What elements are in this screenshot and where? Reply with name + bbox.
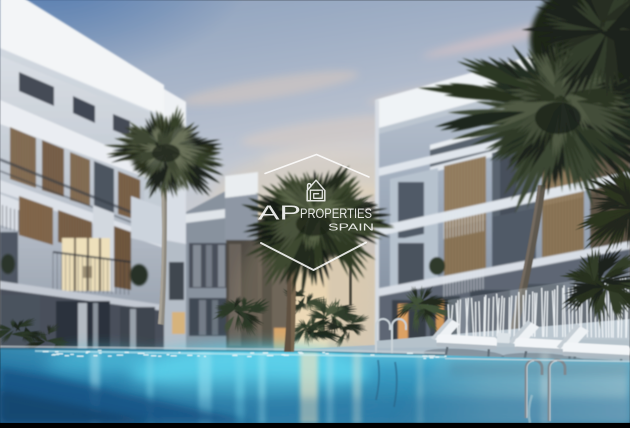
svg-text:PROPERTIES: PROPERTIES <box>300 206 372 222</box>
svg-text:AP: AP <box>258 202 301 225</box>
svg-text:SPAIN: SPAIN <box>328 223 374 234</box>
